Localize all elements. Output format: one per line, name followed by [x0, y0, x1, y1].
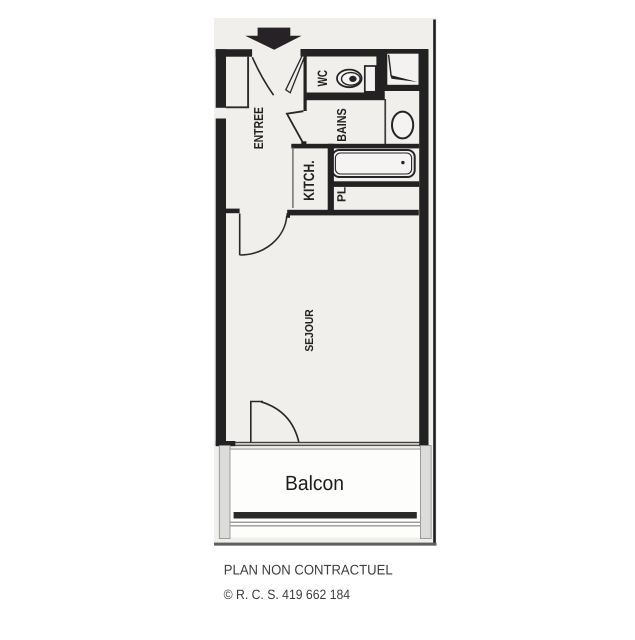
svg-text:ENTREE: ENTREE — [251, 107, 266, 150]
svg-text:SEJOUR: SEJOUR — [304, 309, 316, 352]
svg-text:PL: PL — [334, 187, 348, 202]
svg-text:PLAN NON CONTRACTUEL: PLAN NON CONTRACTUEL — [224, 562, 393, 578]
svg-text:WC: WC — [315, 70, 330, 87]
svg-text:BAINS: BAINS — [334, 108, 349, 142]
svg-text:© R. C. S. 419 662 184: © R. C. S. 419 662 184 — [224, 587, 351, 602]
svg-text:Balcon: Balcon — [285, 472, 344, 495]
svg-text:KITCH.: KITCH. — [301, 160, 318, 200]
